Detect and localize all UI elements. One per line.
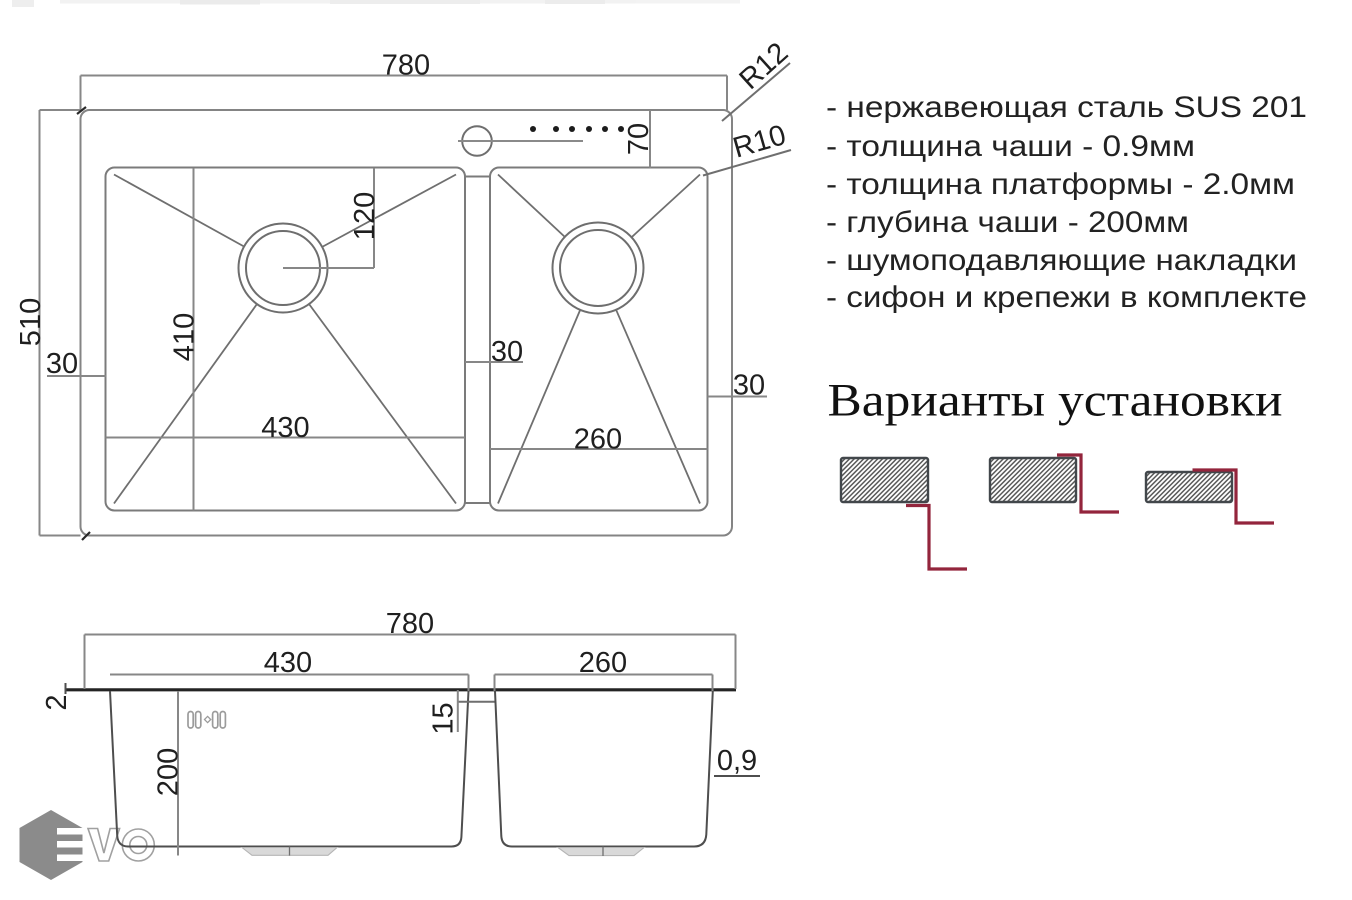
svg-text:510: 510 — [15, 298, 47, 346]
svg-text:- нержавеющая сталь SUS 201: - нержавеющая сталь SUS 201 — [826, 91, 1307, 124]
svg-text:- сифон и крепежи в комплекте: - сифон и крепежи в комплекте — [826, 281, 1307, 314]
svg-text:120: 120 — [349, 192, 381, 240]
svg-text:- глубина чаши - 200мм: - глубина чаши - 200мм — [826, 206, 1189, 239]
svg-text:2: 2 — [41, 694, 73, 710]
svg-text:410: 410 — [169, 313, 201, 361]
svg-text:430: 430 — [261, 412, 309, 444]
svg-text:70: 70 — [623, 123, 655, 155]
svg-text:30: 30 — [46, 348, 78, 380]
svg-text:Варианты установки: Варианты установки — [828, 375, 1283, 427]
svg-text:- шумоподавляющие накладки: - шумоподавляющие накладки — [826, 244, 1297, 277]
svg-text:R10: R10 — [730, 119, 790, 164]
svg-text:15: 15 — [428, 702, 460, 734]
svg-text:780: 780 — [382, 50, 430, 82]
svg-text:430: 430 — [264, 647, 312, 679]
svg-text:- толщина чаши - 0.9мм: - толщина чаши - 0.9мм — [826, 130, 1195, 163]
svg-text:30: 30 — [491, 336, 523, 368]
svg-text:30: 30 — [733, 370, 765, 402]
svg-text:- толщина платформы - 2.0мм: - толщина платформы - 2.0мм — [826, 168, 1295, 201]
svg-text:780: 780 — [386, 608, 434, 640]
svg-text:200: 200 — [153, 748, 185, 796]
svg-text:0,9: 0,9 — [717, 745, 757, 777]
svg-text:260: 260 — [579, 647, 627, 679]
svg-text:260: 260 — [574, 424, 622, 456]
svg-text:R12: R12 — [734, 37, 795, 96]
